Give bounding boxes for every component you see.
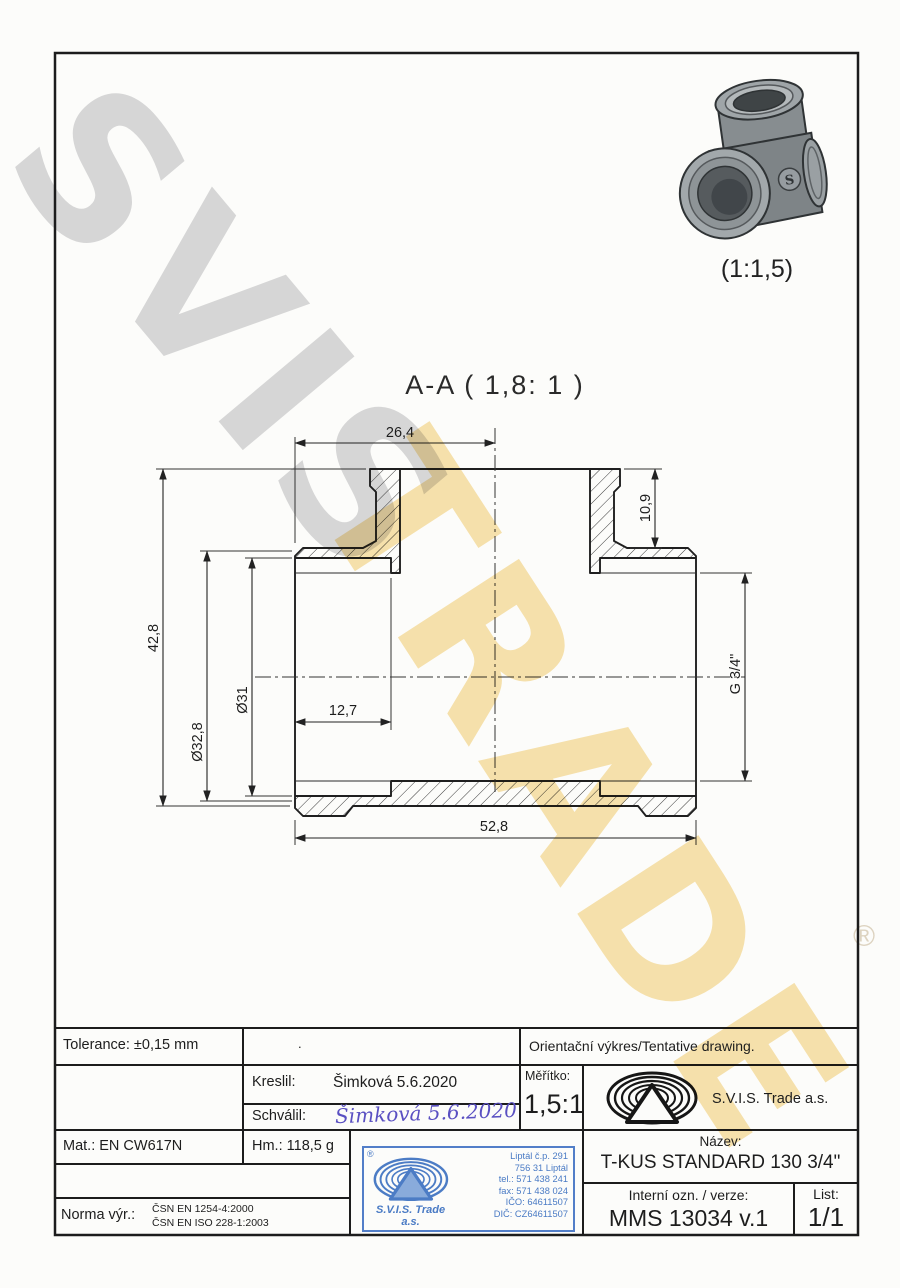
stamp-company-line2: a.s. <box>401 1216 419 1228</box>
dim-thread-depth: 12,7 <box>329 703 357 719</box>
dim-overall-height: 42,8 <box>146 624 162 652</box>
dim-outer-dia: Ø32,8 <box>190 722 206 762</box>
tolerance-value: Tolerance: ±0,15 mm <box>63 1037 198 1053</box>
dim-bore-dia: Ø31 <box>235 686 251 713</box>
meritko-value: 1,5:1 <box>524 1089 584 1120</box>
list-value: 1/1 <box>794 1202 858 1233</box>
photo-caption: (1:1,5) <box>721 255 793 283</box>
svis-logo-black <box>608 1073 696 1123</box>
stamp-address-line: IČO: 64611507 <box>494 1197 568 1209</box>
dimension-lines <box>163 443 745 838</box>
list-label: List: <box>794 1186 858 1202</box>
kreslil-value: Šimková 5.6.2020 <box>333 1074 457 1092</box>
centerlines <box>255 428 745 792</box>
stamp-company-line1: S.V.I.S. Trade <box>376 1204 445 1216</box>
dim-branch-depth: 10,9 <box>638 494 654 522</box>
stamp-address-line: Liptál č.p. 291 <box>494 1151 568 1163</box>
middle-dot: . <box>298 1036 302 1051</box>
stamp-registered-mark: ® <box>367 1149 374 1159</box>
norma-line2: ČSN EN ISO 228-1:2003 <box>152 1217 269 1229</box>
meritko-label: Měřítko: <box>525 1069 570 1083</box>
part-photo: S <box>665 73 833 244</box>
stamp-address-line: fax: 571 438 024 <box>494 1186 568 1198</box>
norma-line1: ČSN EN 1254-4:2000 <box>152 1203 254 1215</box>
interni-label: Interní ozn. / verze: <box>583 1187 794 1203</box>
company-name: S.V.I.S. Trade a.s. <box>712 1091 828 1107</box>
part-section-view <box>255 428 745 816</box>
section-view-title: A-A ( 1,8: 1 ) <box>405 370 585 400</box>
material-value: Mat.: EN CW617N <box>63 1138 182 1154</box>
company-stamp: ® S.V.I.S. Trade a.s. Liptál č.p. 291 75… <box>362 1146 575 1232</box>
stamp-address-line: 756 31 Liptál <box>494 1163 568 1175</box>
dim-thread-size: G 3/4" <box>728 654 744 695</box>
schvalil-label: Schválil: <box>252 1108 306 1124</box>
dim-overall-length: 52,8 <box>480 819 508 835</box>
nazev-value: T-KUS STANDARD 130 3/4" <box>583 1152 858 1174</box>
drawing-sheet: SVIS <box>0 0 900 1288</box>
kreslil-label: Kreslil: <box>252 1074 296 1090</box>
nazev-label: Název: <box>583 1134 858 1149</box>
weight-value: Hm.: 118,5 g <box>252 1138 334 1154</box>
tentative-drawing-note: Orientační výkres/Tentative drawing. <box>529 1038 755 1054</box>
dim-top-width: 26,4 <box>386 425 414 441</box>
stamp-address-line: tel.: 571 438 241 <box>494 1174 568 1186</box>
stamp-address-line: DIČ: CZ64611507 <box>494 1209 568 1221</box>
interni-value: MMS 13034 v.1 <box>583 1205 794 1232</box>
norma-label: Norma výr.: <box>61 1207 135 1223</box>
stamp-address: Liptál č.p. 291 756 31 Liptál tel.: 571 … <box>494 1151 568 1221</box>
